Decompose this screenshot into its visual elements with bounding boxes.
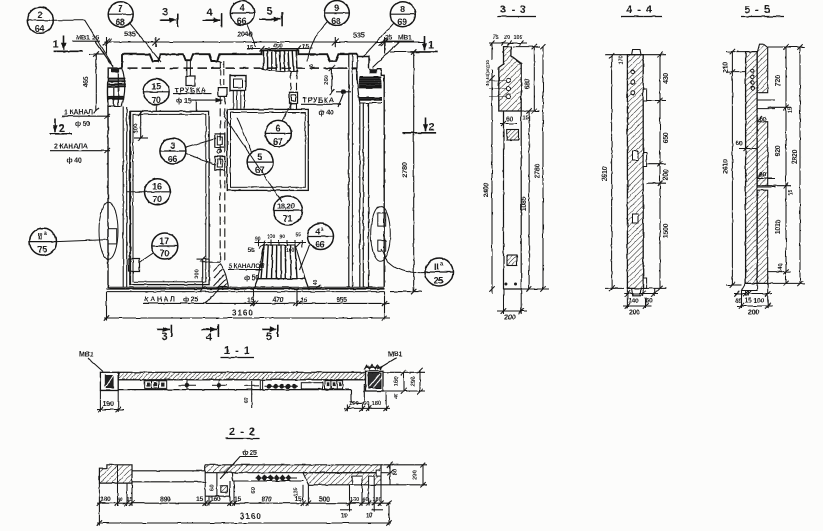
- svg-text:10: 10: [366, 514, 373, 520]
- svg-text:430: 430: [663, 73, 670, 84]
- svg-text:КАНАЛ: КАНАЛ: [145, 297, 177, 304]
- svg-text:20: 20: [504, 35, 510, 41]
- svg-text:200: 200: [663, 169, 670, 180]
- svg-text:200: 200: [413, 470, 419, 480]
- svg-text:1500: 1500: [663, 223, 670, 238]
- svg-text:3 - 3: 3 - 3: [500, 4, 527, 16]
- svg-text:2780: 2780: [400, 162, 409, 178]
- svg-text:300: 300: [134, 124, 140, 134]
- svg-text:ф 40: ф 40: [319, 110, 334, 117]
- svg-text:60: 60: [244, 397, 250, 403]
- svg-text:МВ1: МВ1: [398, 35, 412, 42]
- svg-text:15: 15: [788, 189, 794, 195]
- svg-text:130: 130: [350, 497, 359, 503]
- svg-text:40 64(30)110: 40 64(30)110: [485, 60, 490, 86]
- svg-text:ТРУБКА: ТРУБКА: [303, 98, 335, 105]
- svg-text:180: 180: [100, 496, 111, 503]
- svg-text:55: 55: [248, 247, 255, 254]
- svg-text:2: 2: [429, 122, 435, 134]
- svg-text:60: 60: [646, 298, 653, 305]
- svg-text:71: 71: [283, 214, 293, 224]
- svg-text:90: 90: [255, 237, 261, 243]
- svg-text:60: 60: [363, 497, 369, 503]
- svg-text:2 КАНАЛА: 2 КАНАЛА: [54, 144, 88, 151]
- svg-text:2780: 2780: [535, 163, 542, 178]
- svg-text:68: 68: [331, 16, 341, 26]
- svg-text:200: 200: [504, 313, 516, 322]
- svg-text:210: 210: [723, 62, 730, 73]
- svg-text:80: 80: [393, 469, 399, 475]
- svg-text:16: 16: [152, 182, 162, 192]
- svg-text:17: 17: [160, 236, 170, 246]
- svg-text:500: 500: [319, 497, 330, 504]
- svg-text:105: 105: [514, 35, 523, 41]
- svg-text:3160: 3160: [232, 309, 254, 318]
- svg-text:1 КАНАЛ: 1 КАНАЛ: [64, 110, 93, 117]
- svg-text:ф 40: ф 40: [67, 158, 82, 165]
- svg-text:2610: 2610: [723, 159, 730, 174]
- svg-text:ф 50: ф 50: [75, 121, 90, 128]
- svg-text:64: 64: [35, 24, 45, 34]
- svg-text:535: 535: [353, 31, 365, 40]
- svg-text:180: 180: [372, 401, 382, 407]
- svg-text:2610: 2610: [602, 166, 609, 181]
- svg-text:8: 8: [400, 4, 405, 14]
- svg-text:2400: 2400: [484, 182, 491, 197]
- svg-text:5: 5: [267, 6, 273, 18]
- svg-text:465: 465: [83, 76, 90, 87]
- svg-text:200: 200: [629, 310, 640, 317]
- svg-text:60: 60: [759, 116, 766, 123]
- svg-text:450: 450: [273, 44, 283, 50]
- svg-text:190: 190: [103, 401, 114, 408]
- svg-text:5: 5: [266, 331, 272, 343]
- svg-text:140: 140: [778, 263, 784, 272]
- svg-text:67: 67: [273, 136, 283, 146]
- svg-text:40: 40: [309, 64, 315, 70]
- svg-text:300: 300: [195, 269, 201, 279]
- svg-text:40: 40: [117, 497, 123, 503]
- svg-text:15: 15: [196, 496, 203, 503]
- svg-text:II: II: [38, 231, 42, 241]
- svg-text:60: 60: [210, 485, 216, 491]
- svg-text:70: 70: [160, 249, 170, 259]
- svg-text:160: 160: [394, 377, 400, 387]
- svg-text:66: 66: [168, 154, 178, 164]
- svg-text:ф 50: ф 50: [244, 275, 259, 282]
- svg-text:2 - 2: 2 - 2: [229, 426, 256, 438]
- svg-text:260: 260: [324, 75, 330, 85]
- svg-text:1010: 1010: [775, 219, 782, 234]
- svg-text:15: 15: [300, 297, 307, 304]
- svg-text:40: 40: [313, 280, 319, 286]
- svg-text:2: 2: [59, 123, 65, 135]
- svg-text:II: II: [434, 262, 438, 272]
- svg-text:920: 920: [775, 145, 782, 156]
- svg-text:15: 15: [302, 44, 309, 51]
- svg-text:5 КАНАЛОВ: 5 КАНАЛОВ: [229, 263, 266, 270]
- svg-text:9: 9: [334, 3, 339, 13]
- svg-text:1: 1: [53, 39, 59, 51]
- svg-text:6: 6: [276, 123, 281, 133]
- svg-text:470: 470: [273, 297, 284, 304]
- svg-text:66: 66: [237, 16, 247, 26]
- svg-text:18,20: 18,20: [277, 202, 294, 211]
- svg-text:69: 69: [397, 17, 407, 27]
- svg-text:15: 15: [151, 82, 161, 92]
- svg-text:90: 90: [280, 235, 286, 241]
- svg-text:3: 3: [162, 331, 168, 343]
- svg-text:10: 10: [341, 514, 348, 520]
- svg-text:535: 535: [124, 30, 136, 39]
- svg-text:290: 290: [411, 377, 417, 387]
- svg-text:68: 68: [115, 17, 125, 27]
- svg-text:720: 720: [775, 75, 782, 86]
- svg-text:15: 15: [523, 116, 529, 122]
- svg-text:160: 160: [210, 496, 221, 503]
- svg-text:МВ1: МВ1: [388, 352, 402, 359]
- svg-text:1 - 1: 1 - 1: [224, 345, 251, 357]
- svg-text:15: 15: [788, 107, 794, 113]
- svg-text:100: 100: [754, 298, 765, 305]
- svg-text:180: 180: [373, 497, 382, 503]
- svg-text:5 - 5: 5 - 5: [744, 4, 771, 16]
- svg-text:МВ1: МВ1: [76, 35, 90, 42]
- svg-text:75: 75: [38, 245, 48, 255]
- svg-text:1: 1: [428, 40, 434, 52]
- svg-text:100: 100: [267, 235, 276, 241]
- svg-text:4: 4: [207, 7, 214, 19]
- svg-text:3: 3: [170, 141, 175, 151]
- svg-text:66: 66: [315, 240, 325, 250]
- svg-text:3160: 3160: [240, 512, 262, 521]
- svg-text:15: 15: [127, 497, 133, 503]
- svg-text:4 - 4: 4 - 4: [626, 4, 653, 16]
- svg-text:60: 60: [506, 116, 513, 123]
- svg-text:60: 60: [251, 487, 257, 493]
- svg-text:100: 100: [286, 248, 295, 254]
- svg-text:135: 135: [294, 487, 300, 496]
- svg-text:5: 5: [257, 152, 262, 162]
- svg-text:4: 4: [206, 332, 213, 344]
- svg-text:55: 55: [296, 233, 302, 239]
- svg-text:15: 15: [247, 45, 254, 52]
- svg-text:3: 3: [162, 7, 168, 19]
- svg-text:МВ1: МВ1: [79, 352, 93, 359]
- svg-text:4: 4: [315, 226, 320, 236]
- svg-text:650: 650: [663, 132, 670, 143]
- svg-text:890: 890: [160, 497, 171, 504]
- svg-text:170: 170: [619, 55, 625, 64]
- svg-text:680: 680: [525, 78, 532, 89]
- svg-text:75: 75: [493, 35, 499, 41]
- svg-text:ф 15: ф 15: [176, 98, 191, 105]
- svg-text:2: 2: [38, 10, 43, 20]
- svg-text:2820: 2820: [792, 149, 799, 164]
- svg-text:70: 70: [151, 95, 161, 105]
- svg-text:1085: 1085: [521, 196, 528, 211]
- svg-text:955: 955: [336, 297, 347, 304]
- svg-text:25: 25: [385, 35, 392, 42]
- svg-text:15: 15: [745, 298, 752, 305]
- svg-text:200: 200: [748, 310, 759, 317]
- svg-text:ф 25: ф 25: [183, 297, 198, 304]
- svg-text:7: 7: [118, 4, 123, 14]
- svg-text:60: 60: [736, 141, 743, 148]
- svg-text:4: 4: [240, 3, 245, 13]
- svg-text:870: 870: [261, 497, 272, 504]
- svg-text:60: 60: [363, 401, 369, 407]
- svg-text:150: 150: [349, 401, 359, 407]
- svg-text:70: 70: [152, 194, 162, 204]
- svg-text:25: 25: [434, 275, 444, 285]
- svg-text:15: 15: [234, 496, 241, 503]
- svg-text:40: 40: [394, 394, 400, 400]
